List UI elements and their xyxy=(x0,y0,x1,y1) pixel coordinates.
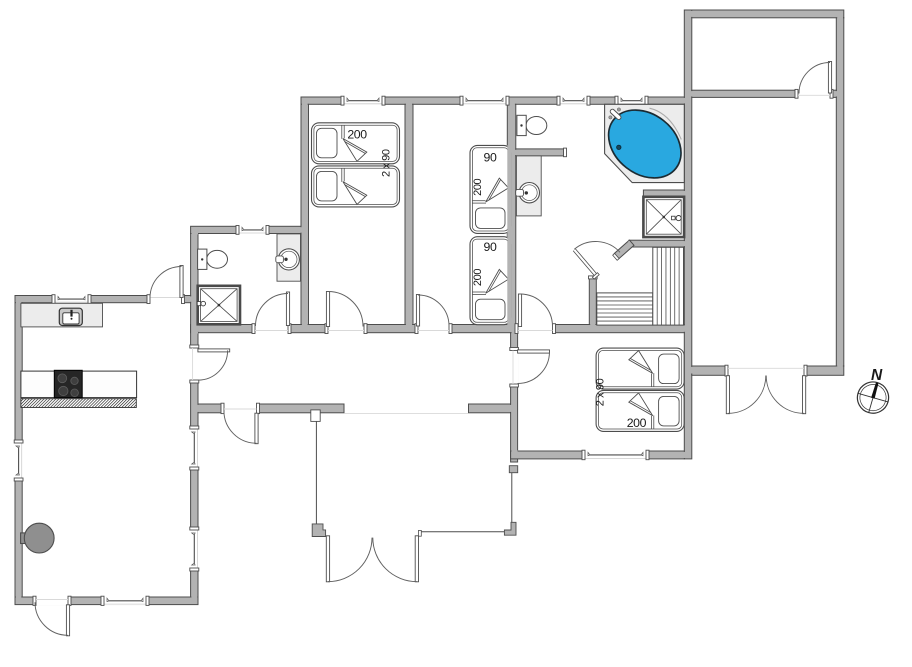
svg-text:200: 200 xyxy=(627,416,647,430)
svg-text:2 x 90: 2 x 90 xyxy=(380,149,392,177)
svg-text:200: 200 xyxy=(472,178,484,195)
svg-text:90: 90 xyxy=(484,240,497,254)
svg-text:2 x 90: 2 x 90 xyxy=(595,378,607,406)
svg-text:200: 200 xyxy=(472,269,484,286)
svg-text:N: N xyxy=(871,367,883,384)
svg-text:90: 90 xyxy=(484,151,497,165)
svg-text:200: 200 xyxy=(347,128,367,142)
